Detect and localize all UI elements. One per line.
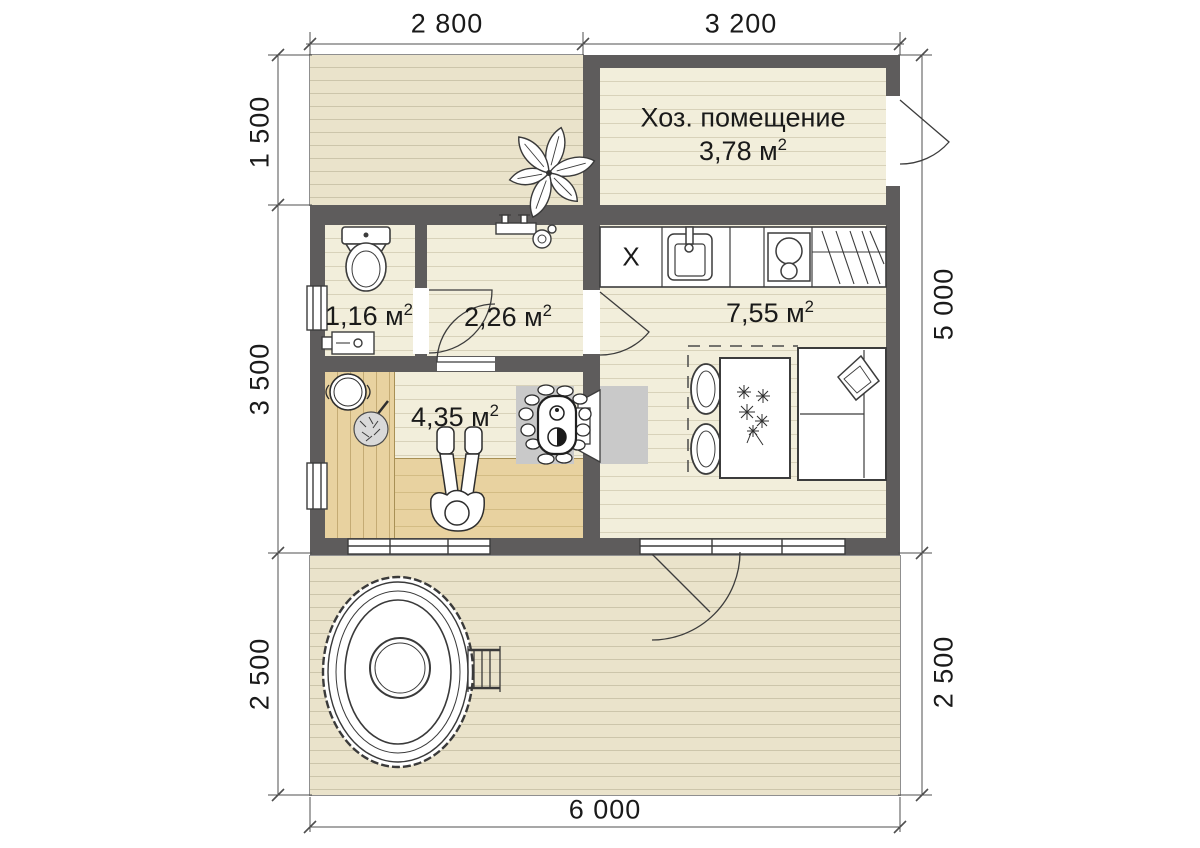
room-kitchen-living	[600, 225, 886, 538]
hall-area-sup: 2	[543, 301, 552, 320]
label-wc-area: 1,16 м2	[325, 300, 413, 332]
wall-middle	[310, 205, 900, 225]
hall-area-value: 2,26 м	[464, 302, 543, 332]
terrace-top	[310, 55, 583, 205]
dimension-bottom: 6 000	[569, 795, 642, 826]
wall-right	[886, 55, 900, 555]
floor-plan: 2 800 3 200 1 500 3 500 2 500 5 000 2 50…	[0, 0, 1200, 848]
utility-area-sup: 2	[778, 135, 787, 154]
label-utility-name: Хоз. помещение	[641, 103, 846, 134]
dimension-top-left: 2 800	[411, 9, 484, 40]
wall-top	[583, 55, 900, 68]
kitchen-area-value: 7,55 м	[726, 298, 805, 328]
dimension-left-top: 1 500	[245, 96, 276, 169]
room-hall	[427, 225, 583, 356]
wc-area-value: 1,16 м	[325, 301, 404, 331]
dimension-right-bottom: 2 500	[929, 636, 960, 709]
wc-area-sup: 2	[404, 300, 413, 319]
dimension-left-middle: 3 500	[245, 343, 276, 416]
wall-sauna-top	[325, 356, 600, 372]
sauna-area-sup: 2	[490, 401, 499, 420]
wall-wc-divider	[415, 225, 427, 356]
wall-left	[310, 205, 325, 555]
room-wc	[325, 225, 415, 356]
dimension-top-right: 3 200	[705, 9, 778, 40]
label-sauna-area: 4,35 м2	[411, 401, 499, 433]
label-kitchen-area: 7,55 м2	[726, 297, 814, 329]
sauna-bench-left	[325, 372, 395, 538]
counter-appliance-mark: X	[622, 242, 639, 273]
label-utility-area: 3,78 м2	[699, 135, 787, 167]
dimension-right-top: 5 000	[929, 268, 960, 341]
sauna-area-value: 4,35 м	[411, 402, 490, 432]
wall-center-divider	[583, 55, 600, 538]
label-hall-area: 2,26 м2	[464, 301, 552, 333]
terrace-bottom	[310, 556, 900, 795]
wall-bottom	[310, 538, 900, 555]
kitchen-area-sup: 2	[805, 297, 814, 316]
utility-area-value: 3,78 м	[699, 136, 778, 166]
dimension-left-bottom: 2 500	[245, 638, 276, 711]
sauna-bench-bottom	[393, 458, 583, 538]
